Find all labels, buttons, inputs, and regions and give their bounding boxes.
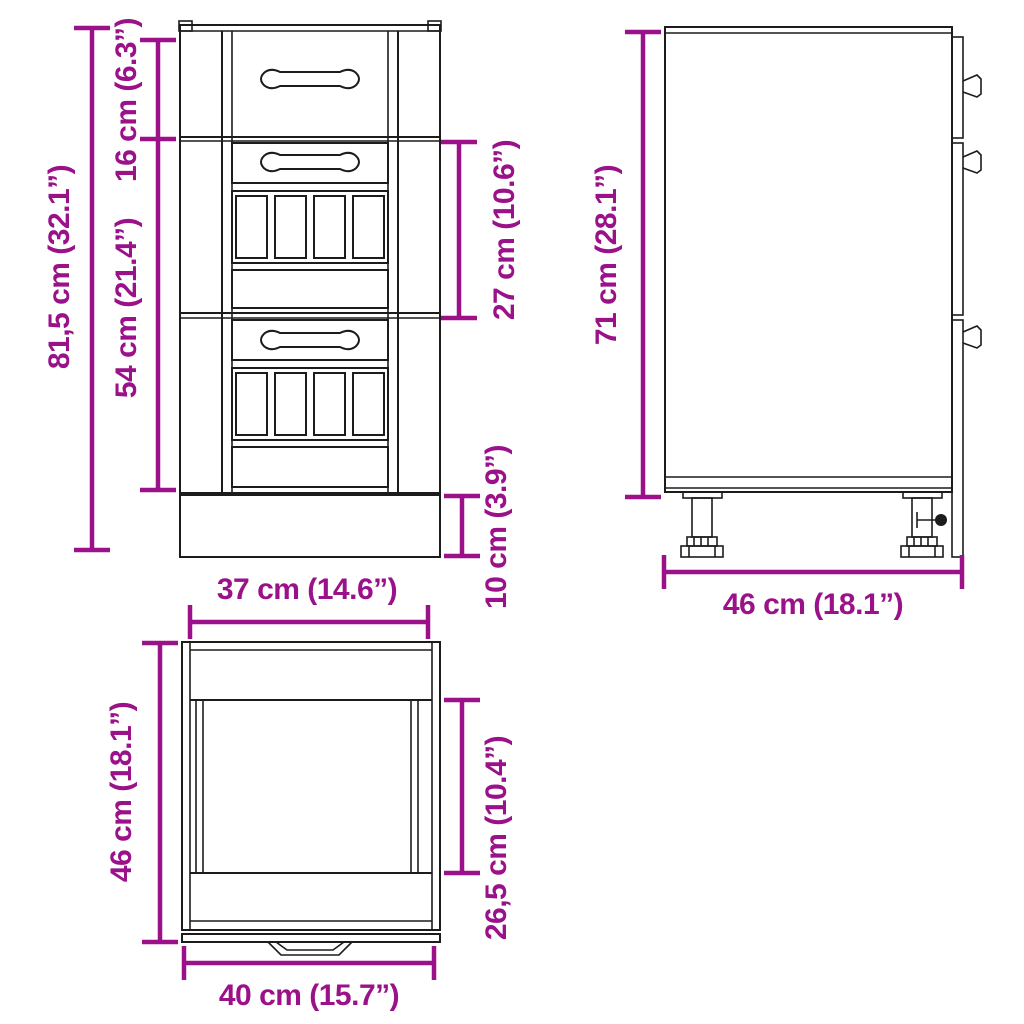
dim-label-total-height: 81,5 cm (32.1”) bbox=[45, 165, 75, 369]
side-view-drawing bbox=[665, 27, 981, 557]
dim-front-middle-section bbox=[441, 142, 477, 318]
clip-top bbox=[963, 75, 981, 97]
dim-front-drawer-heights bbox=[140, 40, 176, 490]
dim-top-width bbox=[184, 946, 434, 980]
dim-label-plinth-height: 10 cm (3.9”) bbox=[482, 445, 512, 609]
dim-label-top-width: 40 cm (15.7”) bbox=[219, 981, 399, 1011]
side-panel-outline bbox=[665, 27, 952, 492]
dim-label-side-height: 71 cm (28.1”) bbox=[592, 165, 622, 345]
dim-label-top-inner-depth: 26,5 cm (10.4”) bbox=[482, 736, 512, 940]
top-view-handle bbox=[268, 942, 352, 955]
dim-side-height bbox=[625, 32, 661, 497]
clip-middle bbox=[963, 151, 981, 173]
dim-label-front-width: 37 cm (14.6”) bbox=[217, 575, 397, 605]
dim-top-depth bbox=[142, 643, 178, 942]
front-carcass-outline bbox=[180, 25, 440, 493]
dim-top-inner-depth bbox=[444, 700, 480, 873]
plinth-screw-knob bbox=[935, 514, 947, 526]
clip-bottom bbox=[963, 326, 981, 348]
top-view-drawing bbox=[182, 642, 440, 955]
dim-label-top-depth: 46 cm (18.1”) bbox=[107, 702, 137, 882]
side-leg-left bbox=[681, 492, 723, 557]
drawer-handle-middle bbox=[261, 153, 359, 171]
dim-front-total-height bbox=[74, 28, 110, 550]
top-view-front-edge bbox=[182, 934, 440, 942]
drawer-handle-top bbox=[261, 70, 359, 88]
dim-front-plinth bbox=[444, 496, 480, 556]
top-view-outline bbox=[182, 642, 440, 930]
dim-label-middle-section: 27 cm (10.6”) bbox=[490, 140, 520, 320]
dim-label-drawer-stack-height: 54 cm (21.4”) bbox=[112, 218, 142, 398]
dim-label-top-drawer-height: 16 cm (6.3”) bbox=[112, 18, 142, 182]
front-plinth bbox=[180, 495, 440, 557]
dimension-diagram: 81,5 cm (32.1”) 16 cm (6.3”) 54 cm (21.4… bbox=[0, 0, 1024, 1024]
front-view-drawing bbox=[179, 21, 441, 557]
side-leg-right bbox=[901, 492, 947, 557]
dim-label-side-depth: 46 cm (18.1”) bbox=[723, 590, 903, 620]
drawer-handle-bottom bbox=[261, 331, 359, 349]
dim-front-width bbox=[190, 605, 428, 639]
dim-side-depth bbox=[664, 555, 962, 589]
